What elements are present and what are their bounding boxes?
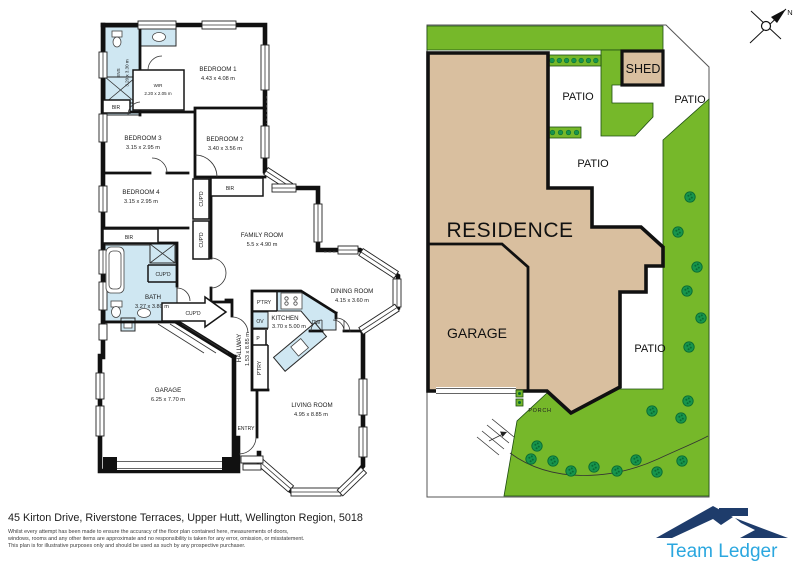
- room-dims-bedroom4: 3.15 x 2.95 m: [124, 199, 158, 205]
- room-dims-bedroom3: 3.15 x 2.95 m: [126, 145, 160, 151]
- room-label-hallway: HALLWAY: [236, 334, 243, 362]
- disclaimer-line-3: This plan is for illustrative purposes o…: [8, 543, 245, 549]
- label-pantry: P'TRY: [257, 300, 272, 306]
- room-dims-garage: 6.25 x 7.70 m: [151, 397, 185, 403]
- footer: 45 Kirton Drive, Riverstone Terraces, Up…: [7, 506, 788, 562]
- room-dims-ens: 3.20 x 3.30 m: [125, 59, 130, 87]
- room-dims-dining: 4.15 x 3.60 m: [335, 298, 369, 304]
- grass-top-band: [427, 26, 663, 50]
- room-dims-family: 5.5 x 4.90 m: [247, 242, 278, 248]
- floor-plan: BEDROOM 1 4.43 x 4.08 m BEDROOM 2 3.40 x…: [96, 21, 401, 496]
- site-label-residence: RESIDENCE: [446, 219, 573, 242]
- site-label-patio: PATIO: [577, 158, 609, 170]
- entry-steps: [241, 456, 263, 470]
- team-ledger-logo: Team Ledger: [656, 506, 788, 562]
- label-cupd: CUP'D: [199, 232, 205, 248]
- garage-door: [103, 457, 236, 471]
- site-label-patio: PATIO: [634, 343, 666, 355]
- room-label-bedroom2: BEDROOM 2: [206, 136, 244, 143]
- site-plan: RESIDENCE GARAGE SHED PATIO PATIO PATIO …: [427, 25, 709, 497]
- label-pantry-short: P: [256, 336, 260, 342]
- room-dims-wir: 2.20 x 2.05 m: [144, 91, 172, 96]
- label-cupd: CUP'D: [185, 311, 201, 317]
- room-label-garage: GARAGE: [155, 387, 181, 394]
- room-dims-bath: 3.27 x 3.80 m: [135, 304, 169, 310]
- room-label-ens: ENS: [116, 68, 121, 77]
- label-oven: OV: [256, 319, 264, 325]
- compass-icon: N: [750, 8, 793, 43]
- room-label-kitchen: KITCHEN: [271, 315, 298, 322]
- room-label-bedroom1: BEDROOM 1: [199, 66, 237, 73]
- room-dims-bedroom1: 4.43 x 4.08 m: [201, 76, 235, 82]
- room-dims-living: 4.95 x 8.85 m: [294, 412, 328, 418]
- site-label-garage: GARAGE: [447, 325, 507, 341]
- room-label-bedroom3: BEDROOM 3: [124, 135, 162, 142]
- label-cupd: CUP'D: [155, 272, 171, 278]
- room-label-living: LIVING ROOM: [291, 402, 332, 409]
- brand-name: Team Ledger: [667, 541, 779, 562]
- room-dims-hallway: 1.53 x 8.85 m: [245, 332, 251, 366]
- compass-north-label: N: [787, 8, 792, 17]
- site-label-porch: PORCH: [528, 408, 551, 414]
- room-label-bedroom4: BEDROOM 4: [122, 189, 160, 196]
- floorplan-page: RESIDENCE GARAGE SHED PATIO PATIO PATIO …: [0, 0, 800, 566]
- label-entry: ENTRY: [238, 426, 256, 432]
- label-bir: BIR: [125, 235, 134, 241]
- roof-logo-icon: [656, 506, 788, 538]
- label-bir: BIR: [226, 186, 235, 192]
- room-label-bath: BATH: [145, 294, 161, 301]
- room-label-family: FAMILY ROOM: [241, 232, 283, 239]
- label-dishwasher: DW: [312, 320, 321, 326]
- disclaimer-line-2: windows, rooms and any other items are a…: [7, 536, 304, 542]
- room-dims-kitchen: 3.70 x 5.00 m: [272, 324, 306, 330]
- site-label-patio: PATIO: [674, 94, 706, 106]
- disclaimer-line-1: Whilst every attempt has been made to en…: [8, 529, 289, 535]
- label-bir: BIR: [112, 105, 121, 111]
- site-label-patio: PATIO: [562, 91, 594, 103]
- room-label-wir: WIR: [154, 83, 163, 88]
- label-pantry: P'TRY: [257, 360, 263, 375]
- site-label-shed: SHED: [626, 62, 661, 76]
- label-cupd: CUP'D: [199, 191, 205, 207]
- room-label-dining: DINING ROOM: [331, 288, 374, 295]
- property-address: 45 Kirton Drive, Riverstone Terraces, Up…: [8, 512, 363, 524]
- room-dims-bedroom2: 3.40 x 3.56 m: [208, 146, 242, 152]
- plan-canvas: RESIDENCE GARAGE SHED PATIO PATIO PATIO …: [0, 0, 800, 566]
